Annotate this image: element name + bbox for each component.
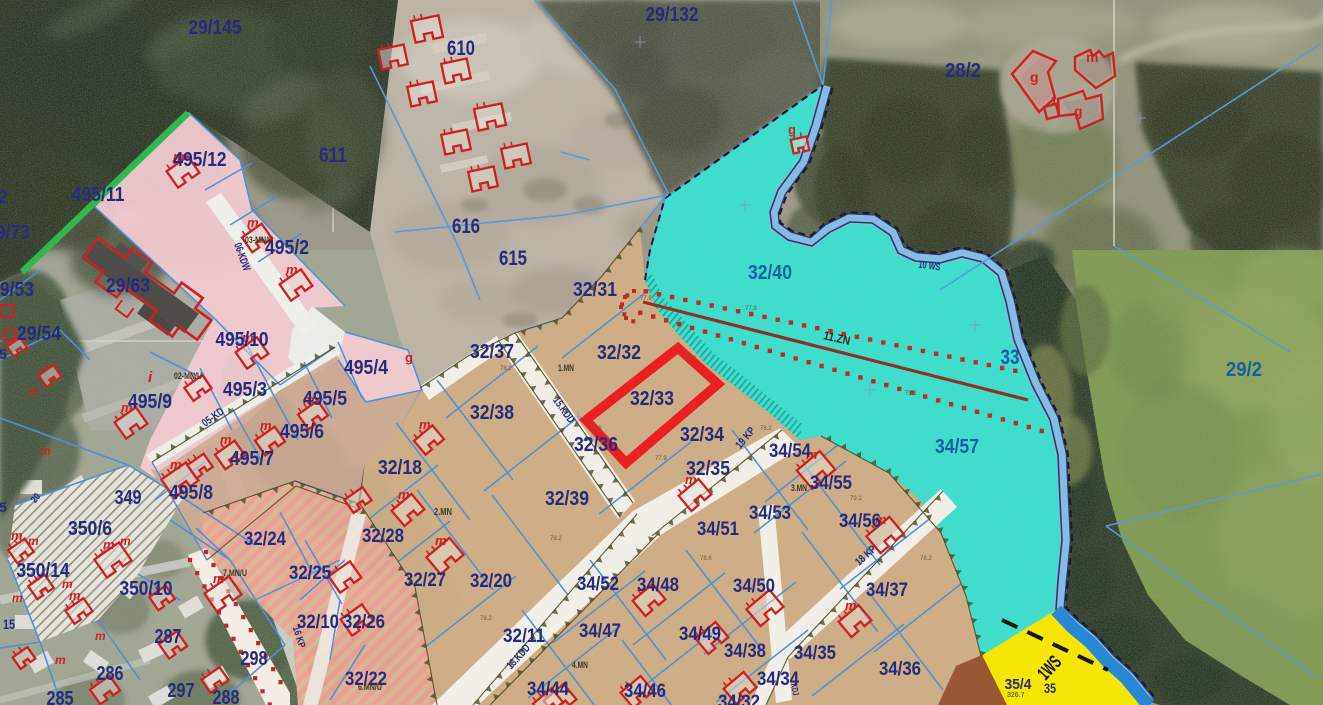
svg-text:34/46: 34/46 [624,681,666,702]
svg-text:495/4: 495/4 [344,357,389,379]
svg-text:5: 5 [0,346,7,362]
svg-text:495/9: 495/9 [128,391,172,413]
svg-text:34/54: 34/54 [769,441,811,462]
svg-text:285: 285 [47,688,74,705]
svg-text:02-MN/U: 02-MN/U [174,371,202,381]
svg-text:350/10: 350/10 [120,578,173,600]
svg-text:34/38: 34/38 [724,641,766,662]
svg-text:4.MN: 4.MN [572,660,588,670]
svg-text:495/8: 495/8 [169,482,213,504]
svg-text:287: 287 [155,626,182,648]
svg-text:495/3: 495/3 [223,379,267,401]
svg-text:34/52: 34/52 [577,574,619,595]
svg-text:297: 297 [168,680,195,702]
svg-text:79.1: 79.1 [685,356,697,362]
svg-text:78.2: 78.2 [550,536,562,542]
svg-text:495/5: 495/5 [303,388,347,410]
svg-text:32/34: 32/34 [680,424,725,446]
svg-text:32/18: 32/18 [378,457,422,479]
svg-text:32/31: 32/31 [573,279,617,301]
svg-text:34/36: 34/36 [879,659,921,680]
svg-text:286: 286 [97,663,124,685]
svg-text:77.9: 77.9 [655,456,667,462]
svg-text:32/39: 32/39 [545,488,589,510]
svg-text:2.MN: 2.MN [434,507,452,518]
svg-text:34/51: 34/51 [697,519,739,540]
svg-text:34/50: 34/50 [733,576,775,597]
svg-text:32/20: 32/20 [470,571,512,592]
svg-text:32/32: 32/32 [597,342,641,364]
svg-text:32/37: 32/37 [470,341,514,363]
svg-text:79.1: 79.1 [850,496,862,502]
svg-text:03-MN/U: 03-MN/U [245,235,273,245]
svg-text:29/73: 29/73 [0,222,30,244]
svg-text:78.2: 78.2 [480,616,492,622]
svg-text:298: 298 [241,648,268,670]
svg-text:616: 616 [452,215,480,238]
svg-text:32/27: 32/27 [404,570,446,591]
svg-text:34/32: 34/32 [718,692,760,705]
svg-text:78.6: 78.6 [700,556,712,562]
svg-text:29/2: 29/2 [1226,359,1262,381]
svg-text:495/7: 495/7 [230,448,274,470]
svg-text:34/49: 34/49 [679,624,721,645]
svg-text:32/40: 32/40 [748,262,792,284]
svg-text:2: 2 [0,187,8,207]
svg-text:288: 288 [213,687,240,705]
svg-text:32/24: 32/24 [244,529,286,550]
svg-text:611: 611 [319,144,347,167]
svg-text:5: 5 [0,499,7,515]
svg-text:326.7: 326.7 [1007,692,1025,699]
svg-text:6.MN/U: 6.MN/U [358,682,382,692]
svg-text:32/35: 32/35 [686,458,730,480]
svg-text:495/10: 495/10 [216,329,269,351]
svg-text:32/36: 32/36 [574,434,618,456]
svg-text:78.2: 78.2 [920,556,932,562]
svg-text:34/57: 34/57 [935,436,979,458]
svg-text:32/38: 32/38 [470,402,514,424]
svg-text:29/53: 29/53 [0,279,34,301]
svg-text:33: 33 [1001,346,1020,369]
svg-text:78.6: 78.6 [590,426,602,432]
svg-text:34/55: 34/55 [810,473,852,494]
svg-text:32/25: 32/25 [289,563,331,584]
svg-text:79.1: 79.1 [905,391,917,397]
svg-text:29/63: 29/63 [106,275,150,297]
svg-text:29/145: 29/145 [189,17,242,39]
svg-text:15: 15 [3,616,15,632]
svg-text:29/54: 29/54 [17,323,62,345]
svg-text:34/35: 34/35 [794,643,836,664]
svg-text:32/28: 32/28 [362,526,404,547]
svg-text:615: 615 [499,247,527,270]
svg-text:495/11: 495/11 [72,184,125,206]
svg-text:35/4: 35/4 [1005,676,1033,693]
svg-text:350/14: 350/14 [17,560,71,582]
svg-text:34/48: 34/48 [637,575,679,596]
svg-text:349: 349 [115,487,142,509]
svg-text:78.2: 78.2 [500,366,512,372]
svg-text:34/47: 34/47 [579,621,621,642]
svg-text:32/33: 32/33 [630,388,674,410]
svg-text:610: 610 [447,37,475,60]
svg-text:495/12: 495/12 [174,149,227,171]
svg-text:34/56: 34/56 [839,511,881,532]
svg-text:34/44: 34/44 [527,679,569,700]
svg-text:32/26: 32/26 [343,612,385,633]
svg-text:3.MN: 3.MN [791,483,807,493]
svg-text:77.9: 77.9 [745,306,757,312]
svg-text:77.9: 77.9 [640,296,652,302]
svg-text:29/132: 29/132 [646,4,699,26]
svg-text:350/6: 350/6 [68,518,112,540]
svg-text:495/6: 495/6 [280,421,324,443]
svg-text:28/2: 28/2 [945,60,981,82]
svg-text:32/10: 32/10 [297,612,339,633]
svg-text:34/37: 34/37 [866,580,908,601]
svg-text:34/53: 34/53 [749,503,791,524]
svg-text:7.MN/U: 7.MN/U [223,568,247,578]
svg-text:78.2: 78.2 [760,426,772,432]
svg-text:1.MN: 1.MN [558,363,574,373]
